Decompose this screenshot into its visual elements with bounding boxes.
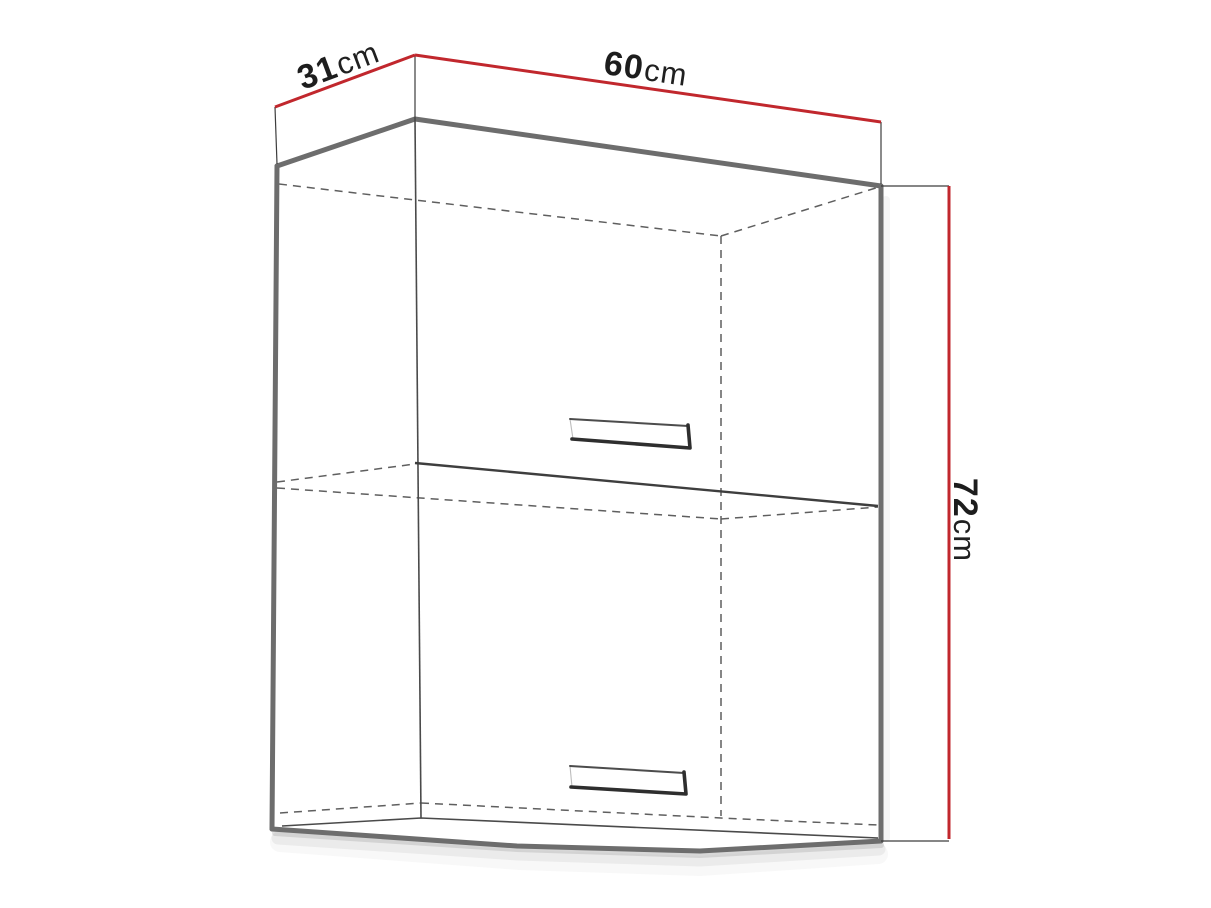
depth-extension-left [275,107,277,164]
depth-label-text: 31cm [292,32,384,97]
height-label-text: 72cm [946,478,984,562]
diagram-svg: 31cm 60cm 72cm [0,0,1211,908]
door-divider-line [415,463,878,506]
cabinet-left-edge [272,166,277,829]
dimension-lines-group [275,55,949,839]
lower-door-handle [570,766,686,794]
hidden-shelf-left-edge [277,464,415,482]
cabinet-dimension-diagram: 31cm 60cm 72cm [0,0,1211,908]
hidden-shelf-right-edge [721,507,878,519]
hidden-shelf-back-edge [277,488,721,519]
depth-dimension-label: 31cm [292,32,384,97]
height-value: 72 [946,478,984,518]
cabinet-top-edges [277,119,881,186]
hidden-bottom-left-edge [280,803,421,813]
width-dimension-label: 60cm [601,44,690,94]
cabinet-body-group [272,119,881,851]
height-unit: cm [947,519,982,562]
width-value: 60 [601,44,646,87]
hidden-top-back-edge [279,184,721,236]
hidden-edges-group [277,184,879,825]
hidden-top-right-edge [721,187,879,236]
upper-door-handle [570,419,690,448]
width-label-text: 60cm [601,44,690,94]
front-left-corner-edge [415,119,421,818]
width-unit: cm [642,52,690,93]
height-dimension-label: 72cm [946,478,984,562]
extension-lines-group [275,55,949,841]
